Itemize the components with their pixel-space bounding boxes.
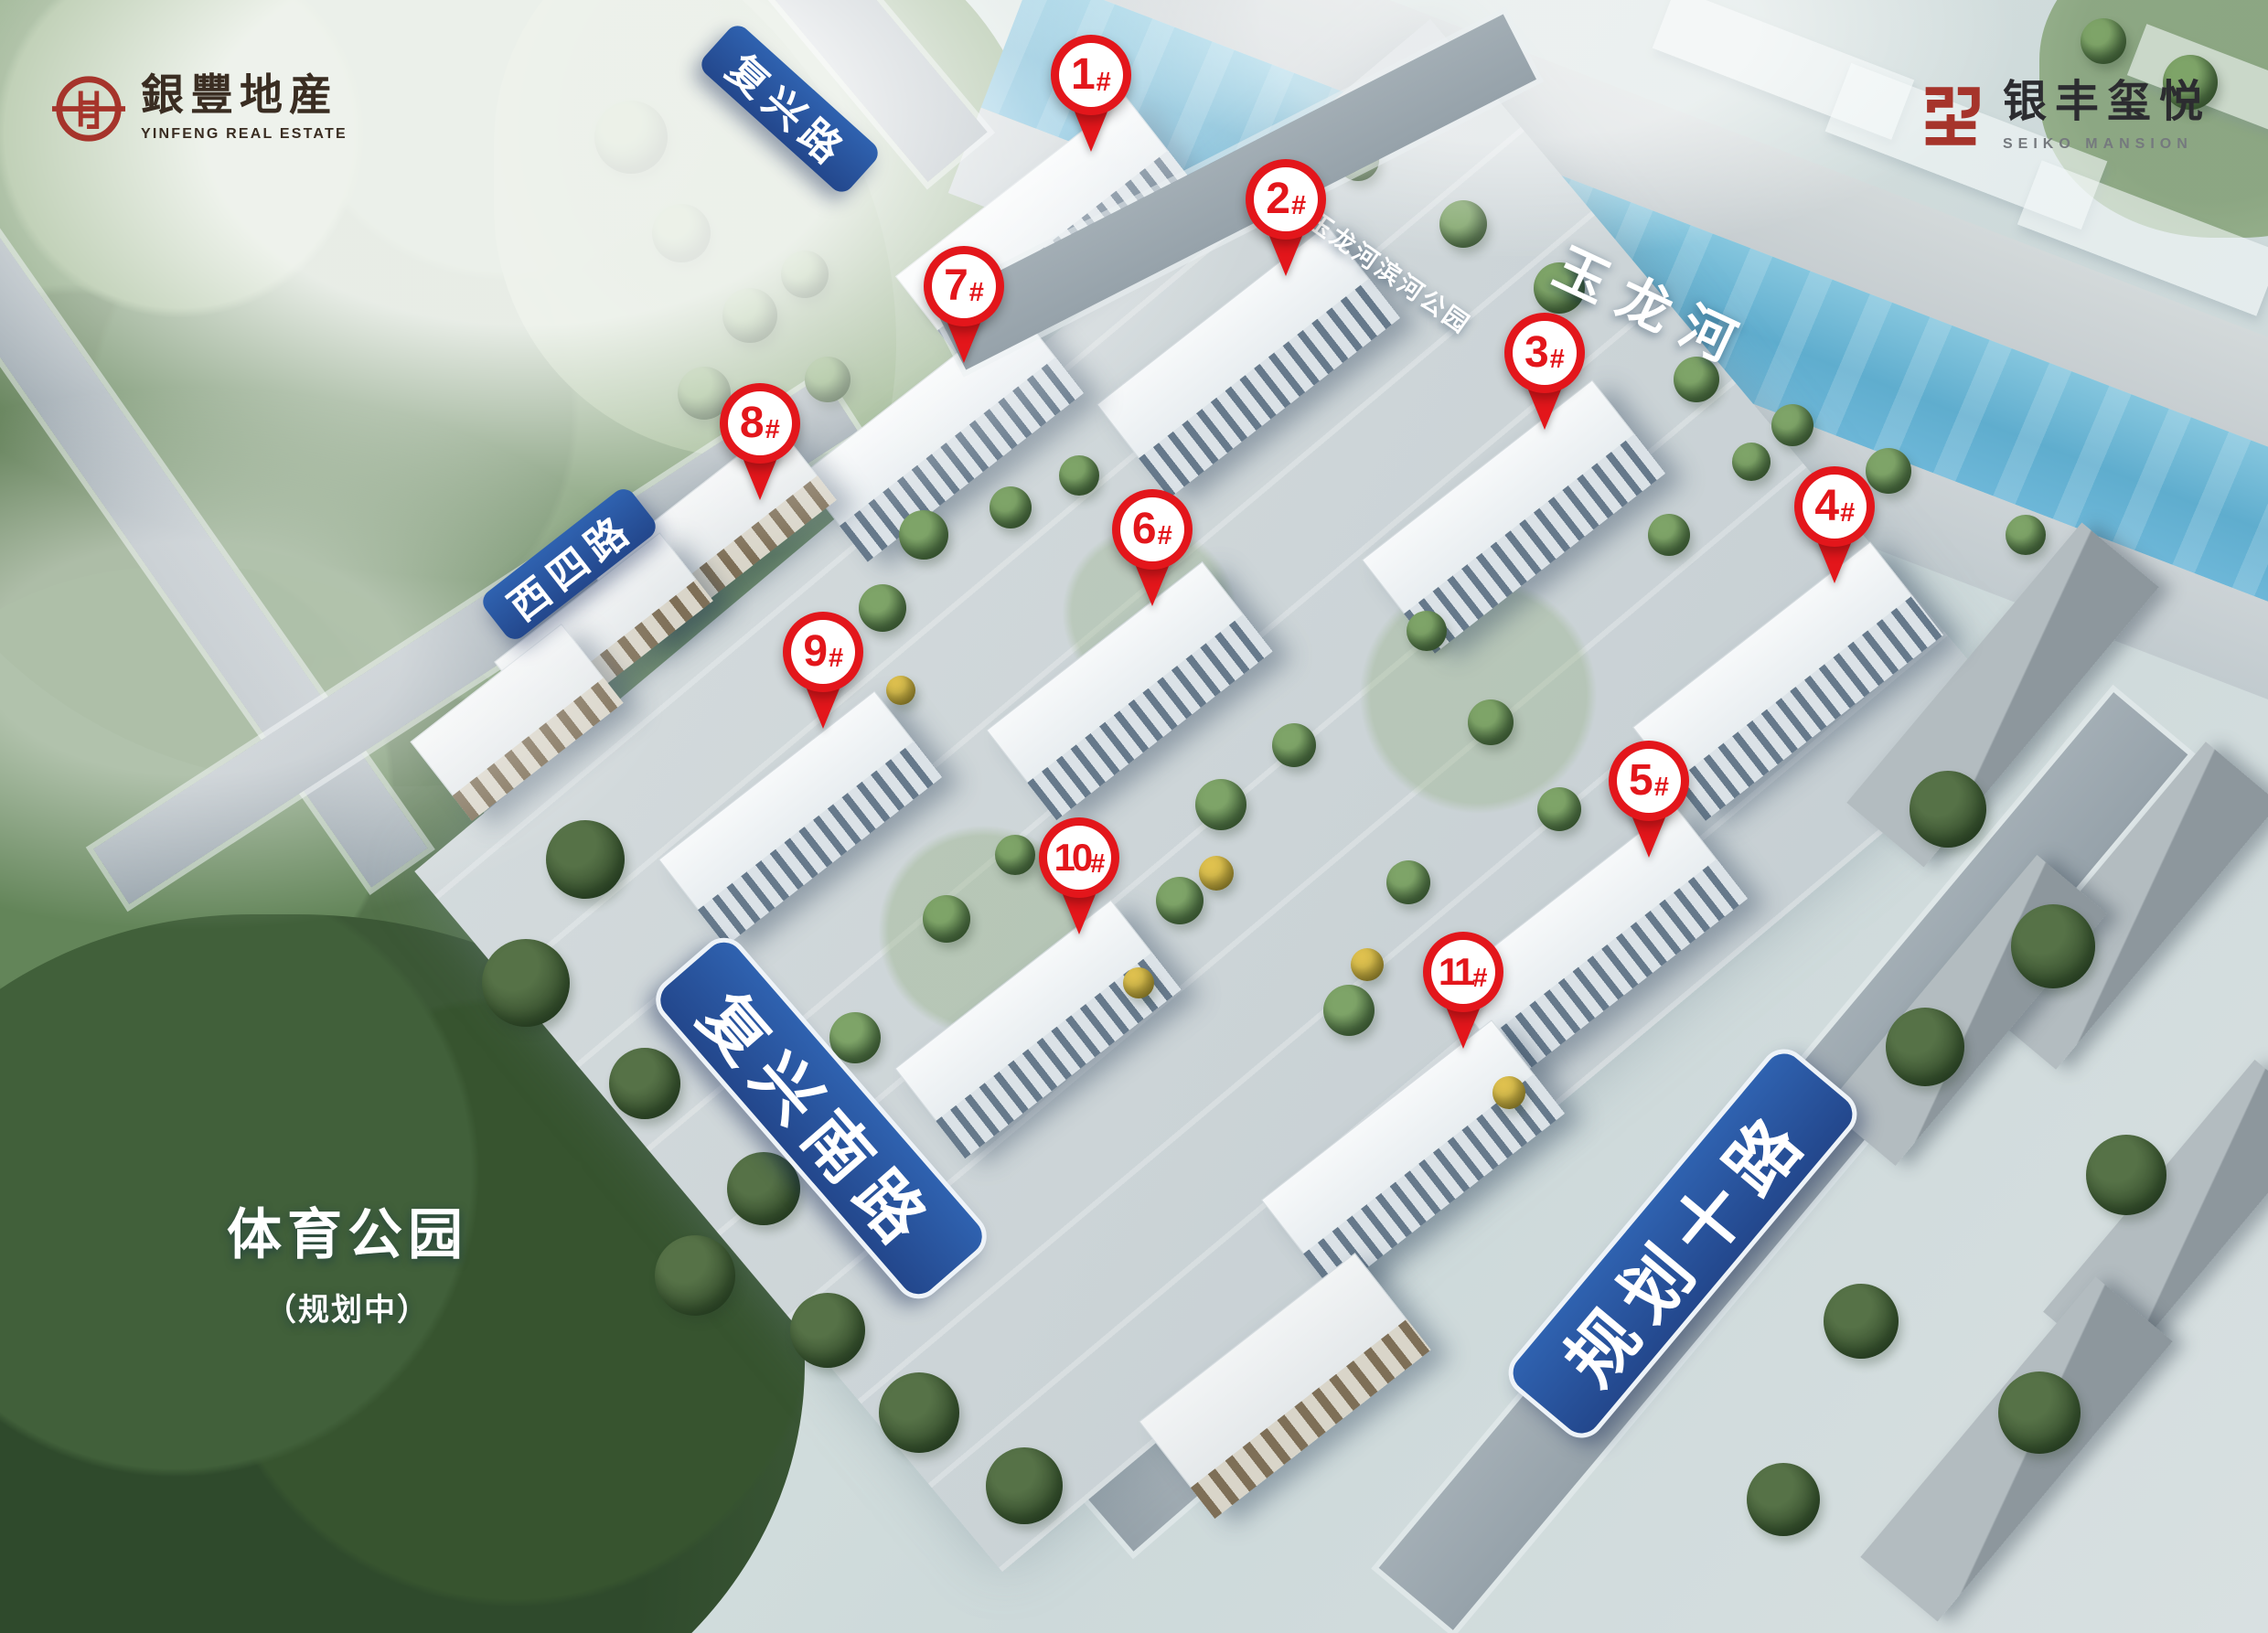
marker-number: 1 xyxy=(1071,53,1096,97)
marker-label: 9# xyxy=(791,620,855,684)
developer-name-cn: 銀豐地産 xyxy=(141,71,348,121)
tree-canopy xyxy=(655,1235,735,1316)
tree-canopy xyxy=(1886,1008,1964,1086)
marker-number: 9 xyxy=(803,630,828,674)
tree-canopy xyxy=(1648,514,1690,556)
marker-balloon-icon: 2# xyxy=(1246,159,1326,240)
building-marker-5[interactable]: 5# xyxy=(1609,741,1689,861)
developer-name-en: YINFENG REAL ESTATE xyxy=(141,126,348,143)
marker-hash-suffix: # xyxy=(1158,523,1172,550)
tree-canopy xyxy=(1156,877,1204,924)
building-marker-6[interactable]: 6# xyxy=(1112,489,1193,610)
marker-balloon-icon: 9# xyxy=(783,612,863,692)
sports-park-label: 体育公园 （规划中） xyxy=(197,1190,498,1329)
marker-number: 2 xyxy=(1266,177,1290,221)
tree-canopy xyxy=(879,1372,959,1453)
building-marker-1[interactable]: 1# xyxy=(1051,35,1131,155)
marker-hash-suffix: # xyxy=(829,646,843,672)
marker-balloon-icon: 8# xyxy=(720,383,800,464)
marker-label: 8# xyxy=(728,391,792,455)
marker-label: 11# xyxy=(1431,940,1495,1004)
marker-balloon-icon: 3# xyxy=(1504,313,1585,393)
marker-label: 7# xyxy=(932,254,996,318)
tree-canopy xyxy=(1732,443,1771,481)
marker-number: 5 xyxy=(1629,759,1653,803)
tree-canopy xyxy=(1407,611,1447,651)
marker-hash-suffix: # xyxy=(969,280,984,306)
marker-number: 6 xyxy=(1132,507,1157,551)
marker-balloon-icon: 10# xyxy=(1039,817,1119,898)
tree-canopy xyxy=(1386,860,1430,904)
tree-canopy xyxy=(1199,856,1234,891)
tree-canopy xyxy=(805,357,850,402)
marker-label: 5# xyxy=(1617,749,1681,813)
building-marker-8[interactable]: 8# xyxy=(720,383,800,504)
building-marker-3[interactable]: 3# xyxy=(1504,313,1585,433)
tree-canopy xyxy=(886,676,915,705)
tree-canopy xyxy=(990,486,1032,528)
marker-hash-suffix: # xyxy=(1090,851,1105,878)
marker-balloon-icon: 7# xyxy=(924,246,1004,326)
marker-hash-suffix: # xyxy=(765,417,780,443)
marker-number: 7 xyxy=(944,264,968,308)
tree-canopy xyxy=(986,1447,1063,1524)
tree-canopy xyxy=(2081,18,2126,64)
tree-canopy xyxy=(1747,1463,1820,1536)
tree-canopy xyxy=(923,895,970,943)
marker-label: 2# xyxy=(1254,167,1318,231)
tree-canopy xyxy=(2086,1135,2166,1215)
tree-canopy xyxy=(1998,1372,2081,1454)
marker-hash-suffix: # xyxy=(1840,500,1855,527)
tree-canopy xyxy=(1492,1076,1525,1109)
yinfeng-seal-icon xyxy=(51,71,126,146)
developer-logo: 銀豐地産 YINFENG REAL ESTATE xyxy=(51,71,348,146)
tree-canopy xyxy=(1824,1284,1899,1359)
building-marker-2[interactable]: 2# xyxy=(1246,159,1326,280)
sports-park-name: 体育公园 xyxy=(197,1190,498,1270)
tree-canopy xyxy=(609,1048,680,1119)
marker-balloon-icon: 4# xyxy=(1794,466,1875,547)
marker-label: 3# xyxy=(1513,321,1577,385)
building-marker-10[interactable]: 10# xyxy=(1039,817,1119,938)
marker-number: 4 xyxy=(1814,485,1839,528)
marker-number: 8 xyxy=(740,401,765,445)
tree-canopy xyxy=(790,1293,865,1368)
tree-canopy xyxy=(722,288,777,343)
tree-canopy xyxy=(546,820,625,899)
project-name-en: SEIKO MANSION xyxy=(2003,136,2211,153)
marker-hash-suffix: # xyxy=(1472,966,1487,992)
project-logo: 银丰玺悦 SEIKO MANSION xyxy=(1913,79,2211,154)
tree-canopy xyxy=(1323,985,1375,1036)
marker-balloon-icon: 11# xyxy=(1423,932,1503,1012)
building-marker-11[interactable]: 11# xyxy=(1423,932,1503,1052)
tree-canopy xyxy=(1439,200,1487,248)
marker-hash-suffix: # xyxy=(1654,774,1669,801)
tree-canopy xyxy=(859,584,906,632)
marker-hash-suffix: # xyxy=(1550,347,1565,373)
tree-canopy xyxy=(899,510,948,560)
masterplan-render: 复兴路 西四路 复兴南路 规划十路 玉龙河 玉龙河滨河公园 体育公园 （规划中）… xyxy=(0,0,2268,1633)
marker-balloon-icon: 6# xyxy=(1112,489,1193,570)
project-name-cn: 银丰玺悦 xyxy=(2003,79,2211,127)
marker-hash-suffix: # xyxy=(1291,193,1306,219)
tree-canopy xyxy=(1272,723,1316,767)
tree-canopy xyxy=(1910,771,1986,848)
marker-balloon-icon: 1# xyxy=(1051,35,1131,115)
tree-canopy xyxy=(1059,455,1099,496)
sports-park-status: （规划中） xyxy=(197,1285,498,1329)
tree-canopy xyxy=(1537,787,1581,831)
tree-canopy xyxy=(781,251,829,298)
marker-label: 6# xyxy=(1120,497,1184,561)
tree-canopy xyxy=(2011,904,2095,988)
marker-number: 10 xyxy=(1054,838,1090,877)
marker-number: 3 xyxy=(1524,331,1549,375)
tree-canopy xyxy=(995,835,1035,875)
tree-canopy xyxy=(1351,948,1384,981)
marker-label: 10# xyxy=(1047,826,1111,890)
marker-balloon-icon: 5# xyxy=(1609,741,1689,821)
building-marker-4[interactable]: 4# xyxy=(1794,466,1875,587)
tree-canopy xyxy=(594,101,668,174)
tree-canopy xyxy=(1123,967,1154,998)
marker-number: 11 xyxy=(1439,953,1471,991)
marker-label: 1# xyxy=(1059,43,1123,107)
building-marker-9[interactable]: 9# xyxy=(783,612,863,732)
tree-canopy xyxy=(1468,699,1514,745)
building-marker-7[interactable]: 7# xyxy=(924,246,1004,367)
xiyue-seal-icon xyxy=(1913,79,1988,154)
tree-canopy xyxy=(482,939,570,1027)
tree-canopy xyxy=(652,204,711,262)
tree-canopy xyxy=(1195,779,1246,830)
marker-hash-suffix: # xyxy=(1097,69,1111,96)
marker-label: 4# xyxy=(1803,475,1867,539)
tree-canopy xyxy=(2006,515,2046,555)
